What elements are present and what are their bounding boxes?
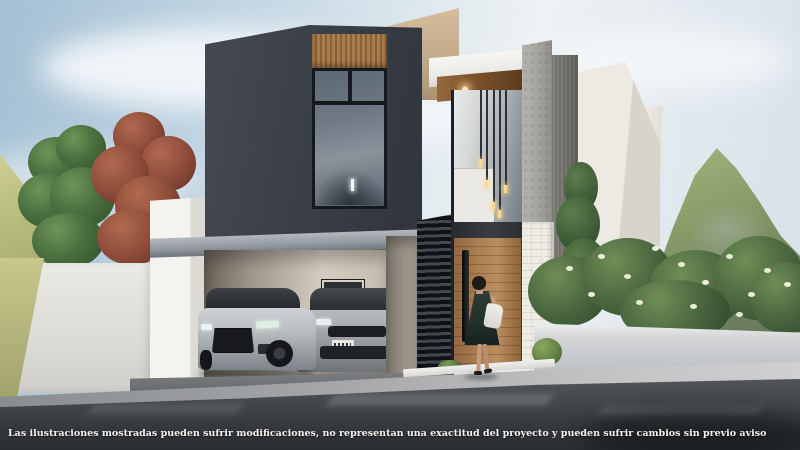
hedge-right <box>528 228 800 340</box>
pendant-light <box>499 90 501 211</box>
car-wheel <box>266 340 293 367</box>
car-grille <box>328 326 386 337</box>
concrete-pillar <box>522 40 552 224</box>
white-flower-clusters <box>540 252 547 257</box>
carport-pier <box>386 236 418 384</box>
architectural-render: Las ilustraciones mostradas pueden sufri… <box>0 0 800 450</box>
leg <box>476 344 481 372</box>
upper-window-glass <box>315 71 384 206</box>
charcoal-upper-volume <box>205 25 422 253</box>
wood-slat-band <box>312 34 387 69</box>
interior-lamp-reflection <box>351 179 354 191</box>
headlight <box>201 324 212 330</box>
car-wheel <box>200 350 212 370</box>
shoe <box>484 368 493 373</box>
upper-window-frame <box>312 68 387 209</box>
window-mullion <box>315 101 384 105</box>
car-grille <box>212 328 254 353</box>
disclaimer-bar: Las ilustraciones mostradas pueden sufri… <box>0 424 800 450</box>
headlight <box>316 319 331 325</box>
pendant-light <box>505 90 507 186</box>
wet-reflection <box>87 404 243 414</box>
hair <box>472 276 486 290</box>
pendant-light <box>480 90 482 160</box>
window-mullion <box>348 71 352 101</box>
disclaimer-text: Las ilustraciones mostradas pueden sufri… <box>8 428 766 439</box>
person-shadow <box>464 374 498 380</box>
slatted-metal-gate <box>417 214 454 382</box>
wet-reflection <box>326 394 553 406</box>
walking-woman <box>458 274 506 380</box>
pendant-light <box>486 90 488 181</box>
door-header <box>451 222 523 239</box>
pendant-light <box>493 90 495 203</box>
silver-sedan <box>198 288 316 380</box>
glass-reflection <box>319 167 381 205</box>
shoe <box>474 371 482 375</box>
entry-glazing <box>451 90 523 224</box>
leg <box>483 344 490 371</box>
car-intake <box>320 346 396 359</box>
white-bag <box>483 303 504 330</box>
